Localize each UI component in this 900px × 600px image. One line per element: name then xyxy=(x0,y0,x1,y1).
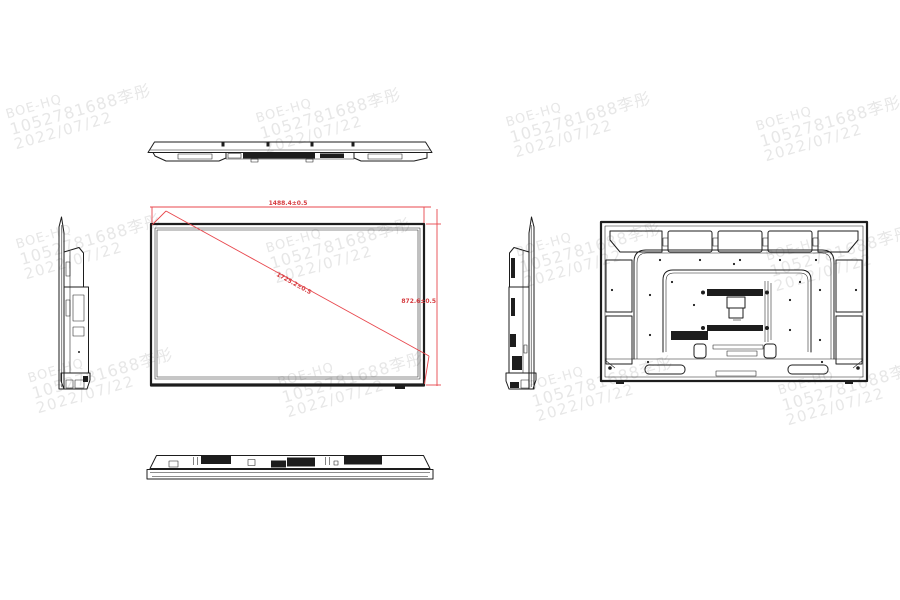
back-label-plate xyxy=(671,331,708,340)
top-view-center-bar xyxy=(243,153,315,159)
bottom-bar xyxy=(147,470,433,480)
left-side-view xyxy=(59,217,90,389)
width-dimension-label: 1488.4±0.5 xyxy=(269,200,308,207)
bottom-speaker-left xyxy=(201,456,231,464)
right-side-port xyxy=(511,258,515,278)
technical-drawing-canvas: BOE-HQ1052781688李彤2022/07/22BOE-HQ105278… xyxy=(0,0,900,600)
right-side-view xyxy=(506,217,536,389)
back-top-vents xyxy=(610,231,858,252)
back-view xyxy=(601,222,867,384)
diagonal-dimension-label: 1725.2±0.5 xyxy=(275,271,312,296)
drawing-svg: 1488.4±0.5 872.6±0.5 1725.2±0.5 xyxy=(0,0,900,600)
bottom-speaker-right xyxy=(344,456,382,465)
bottom-connector-bay xyxy=(287,458,315,467)
back-outline xyxy=(601,222,867,381)
back-speaker-slot-left xyxy=(645,365,685,374)
back-side-columns xyxy=(606,260,862,364)
front-view: 1488.4±0.5 872.6±0.5 1725.2±0.5 xyxy=(150,200,441,389)
vesa-bottom-bar xyxy=(707,325,763,331)
vesa-top-bar xyxy=(707,289,763,296)
back-arch-frames xyxy=(634,250,834,359)
back-speaker-slot-right xyxy=(788,365,828,374)
back-screws xyxy=(608,259,860,370)
bottom-view xyxy=(147,456,433,480)
top-view xyxy=(148,142,432,162)
right-side-outline xyxy=(529,217,534,389)
top-view-outline xyxy=(148,142,432,153)
left-side-outline xyxy=(59,217,64,389)
height-dimension-label: 872.6±0.5 xyxy=(401,298,436,305)
front-ir-tab xyxy=(395,386,405,390)
front-screen-area xyxy=(157,230,418,377)
back-vesa-mount xyxy=(671,281,771,356)
front-bezel-outline xyxy=(151,224,424,386)
